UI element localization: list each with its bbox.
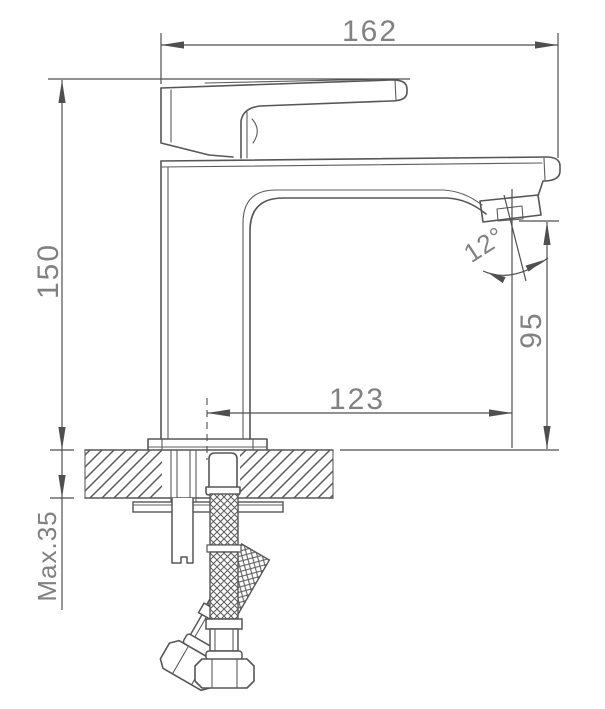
dim-label-max-thickness: Max.35 xyxy=(32,510,62,601)
threaded-fixing-stud xyxy=(171,450,196,502)
technical-drawing: 162 150 Max.35 123 95 12° xyxy=(0,0,605,709)
faucet-lever-handle xyxy=(161,79,407,158)
dim-label-overall-width: 162 xyxy=(342,15,398,48)
dim-label-outlet-height: 95 xyxy=(515,311,548,348)
threaded-stud-lower xyxy=(172,498,193,563)
dim-label-outlet-angle: 12° xyxy=(458,220,510,268)
backing-plate xyxy=(133,502,283,512)
faucet-dimension-drawing: 162 150 Max.35 123 95 12° xyxy=(0,0,605,709)
faucet-aerator-outlet xyxy=(480,195,541,222)
dim-label-overall-height: 150 xyxy=(32,243,65,299)
dim-label-spout-reach: 123 xyxy=(329,383,385,416)
dim-max-mounting-thickness: Max.35 xyxy=(32,450,74,610)
hose-connector-shank xyxy=(206,453,240,495)
